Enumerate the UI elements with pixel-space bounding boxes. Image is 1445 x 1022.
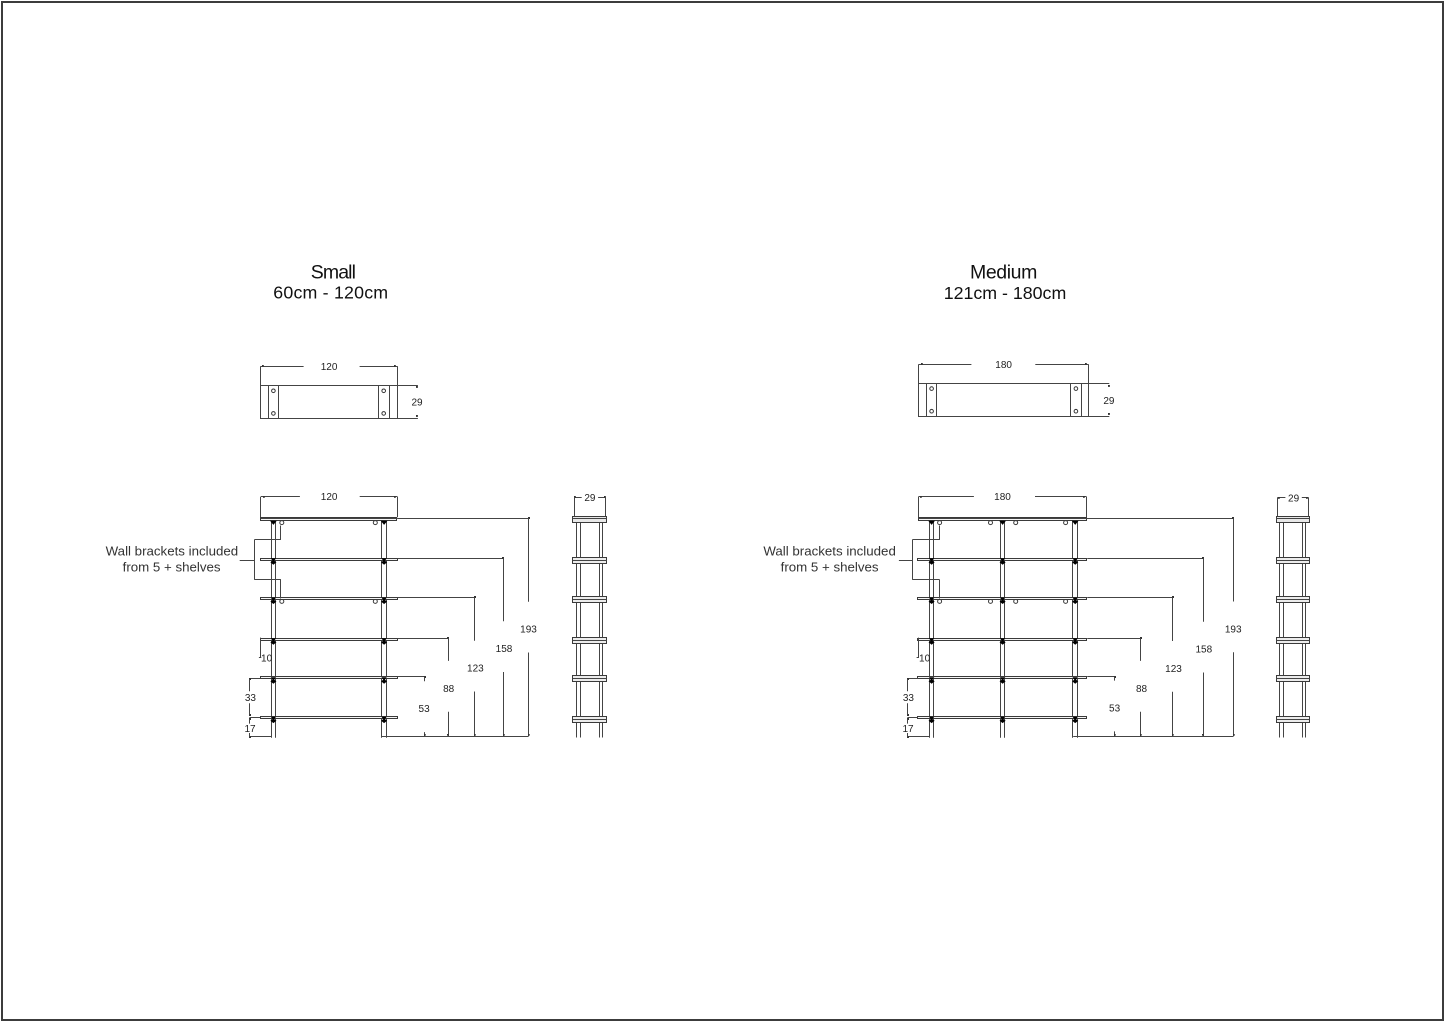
- svg-text:158: 158: [1195, 645, 1212, 656]
- svg-text:17: 17: [244, 724, 256, 735]
- svg-text:53: 53: [419, 704, 431, 715]
- svg-text:88: 88: [443, 684, 455, 695]
- svg-text:10: 10: [261, 653, 273, 664]
- svg-text:88: 88: [1136, 684, 1148, 695]
- svg-text:33: 33: [903, 693, 915, 704]
- svg-text:29: 29: [584, 493, 596, 504]
- svg-text:Small: Small: [311, 262, 356, 284]
- svg-text:123: 123: [1165, 664, 1182, 675]
- svg-text:Wall brackets included: Wall brackets included: [106, 544, 239, 559]
- svg-text:60cm - 120cm: 60cm - 120cm: [273, 283, 388, 303]
- svg-text:158: 158: [496, 644, 513, 655]
- svg-text:from 5 + shelves: from 5 + shelves: [781, 560, 879, 575]
- svg-text:17: 17: [902, 724, 914, 735]
- svg-text:120: 120: [321, 362, 338, 373]
- svg-text:121cm - 180cm: 121cm - 180cm: [944, 283, 1067, 303]
- svg-text:29: 29: [1288, 493, 1300, 504]
- svg-text:193: 193: [520, 625, 537, 636]
- svg-text:from 5 + shelves: from 5 + shelves: [123, 560, 221, 575]
- svg-text:120: 120: [321, 492, 338, 503]
- svg-text:180: 180: [995, 360, 1012, 371]
- svg-text:180: 180: [994, 492, 1011, 503]
- svg-text:29: 29: [411, 397, 423, 408]
- svg-text:29: 29: [1103, 396, 1115, 407]
- svg-text:33: 33: [245, 693, 257, 704]
- svg-text:10: 10: [919, 653, 931, 664]
- svg-text:53: 53: [1109, 704, 1121, 715]
- svg-text:Medium: Medium: [970, 261, 1037, 283]
- svg-text:Wall brackets included: Wall brackets included: [763, 544, 896, 559]
- svg-text:123: 123: [467, 664, 484, 675]
- svg-text:193: 193: [1225, 624, 1242, 635]
